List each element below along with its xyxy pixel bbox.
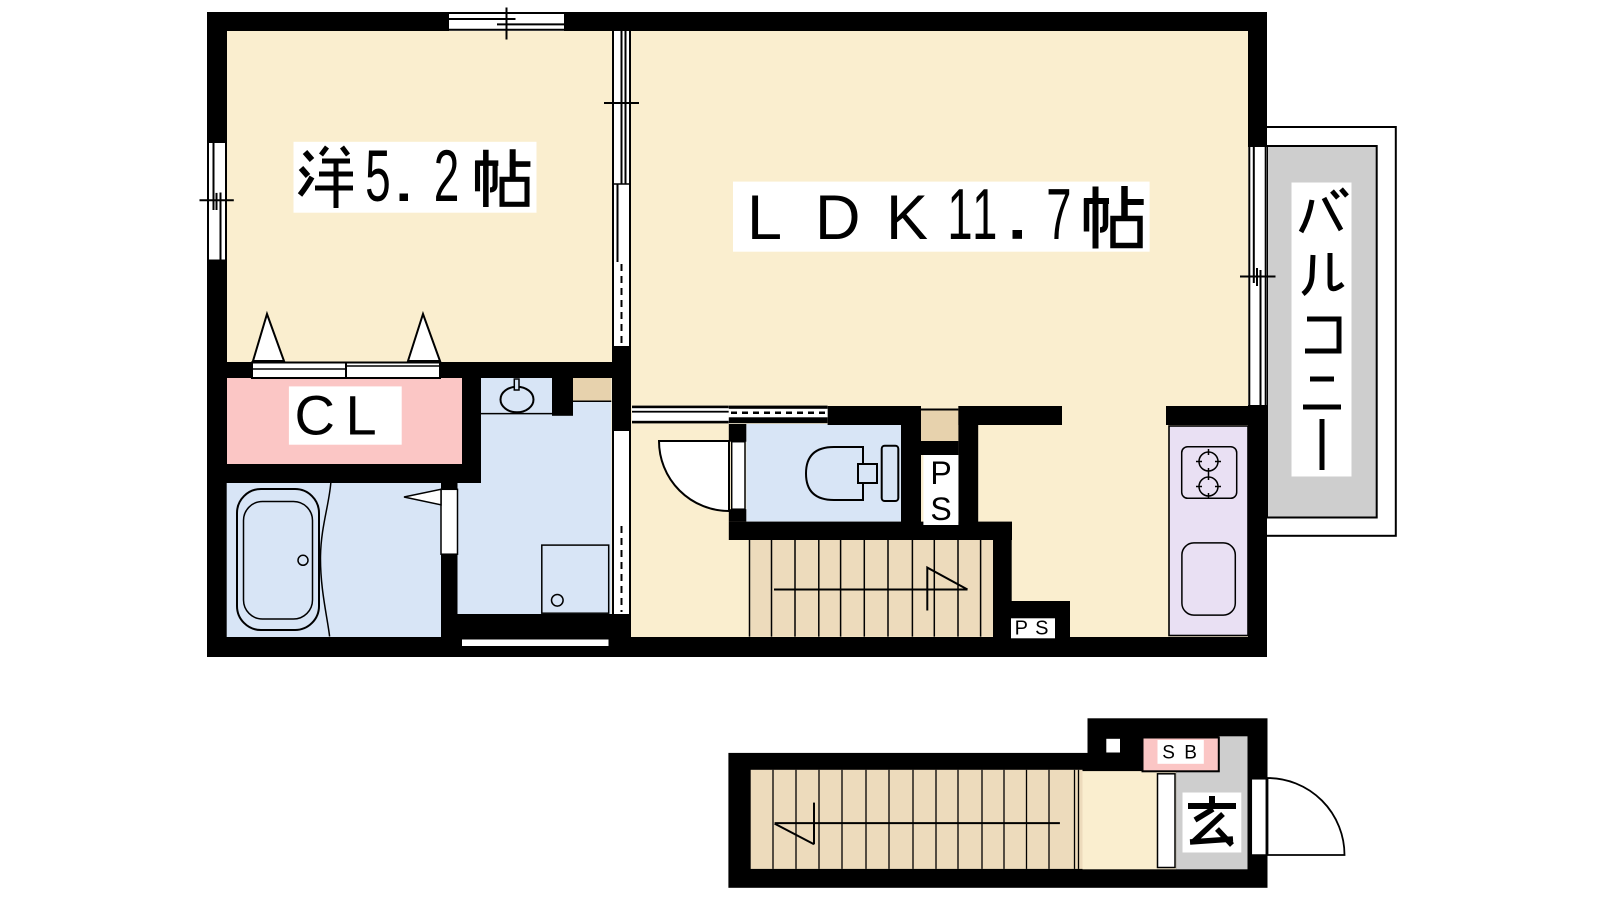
svg-text:L: L	[747, 183, 782, 253]
svg-text:S: S	[930, 491, 951, 527]
svg-text:1: 1	[972, 174, 997, 254]
svg-text:L: L	[346, 384, 377, 447]
svg-text:D: D	[815, 183, 861, 253]
svg-text:1: 1	[947, 174, 972, 254]
svg-text:P S: P S	[1015, 618, 1050, 640]
svg-text:2: 2	[434, 135, 460, 216]
svg-text:C: C	[295, 384, 335, 447]
svg-text:5: 5	[365, 135, 391, 216]
svg-text:P: P	[930, 455, 951, 491]
svg-text:S B: S B	[1162, 743, 1199, 764]
svg-text:7: 7	[1046, 174, 1071, 254]
svg-text:K: K	[886, 183, 928, 253]
